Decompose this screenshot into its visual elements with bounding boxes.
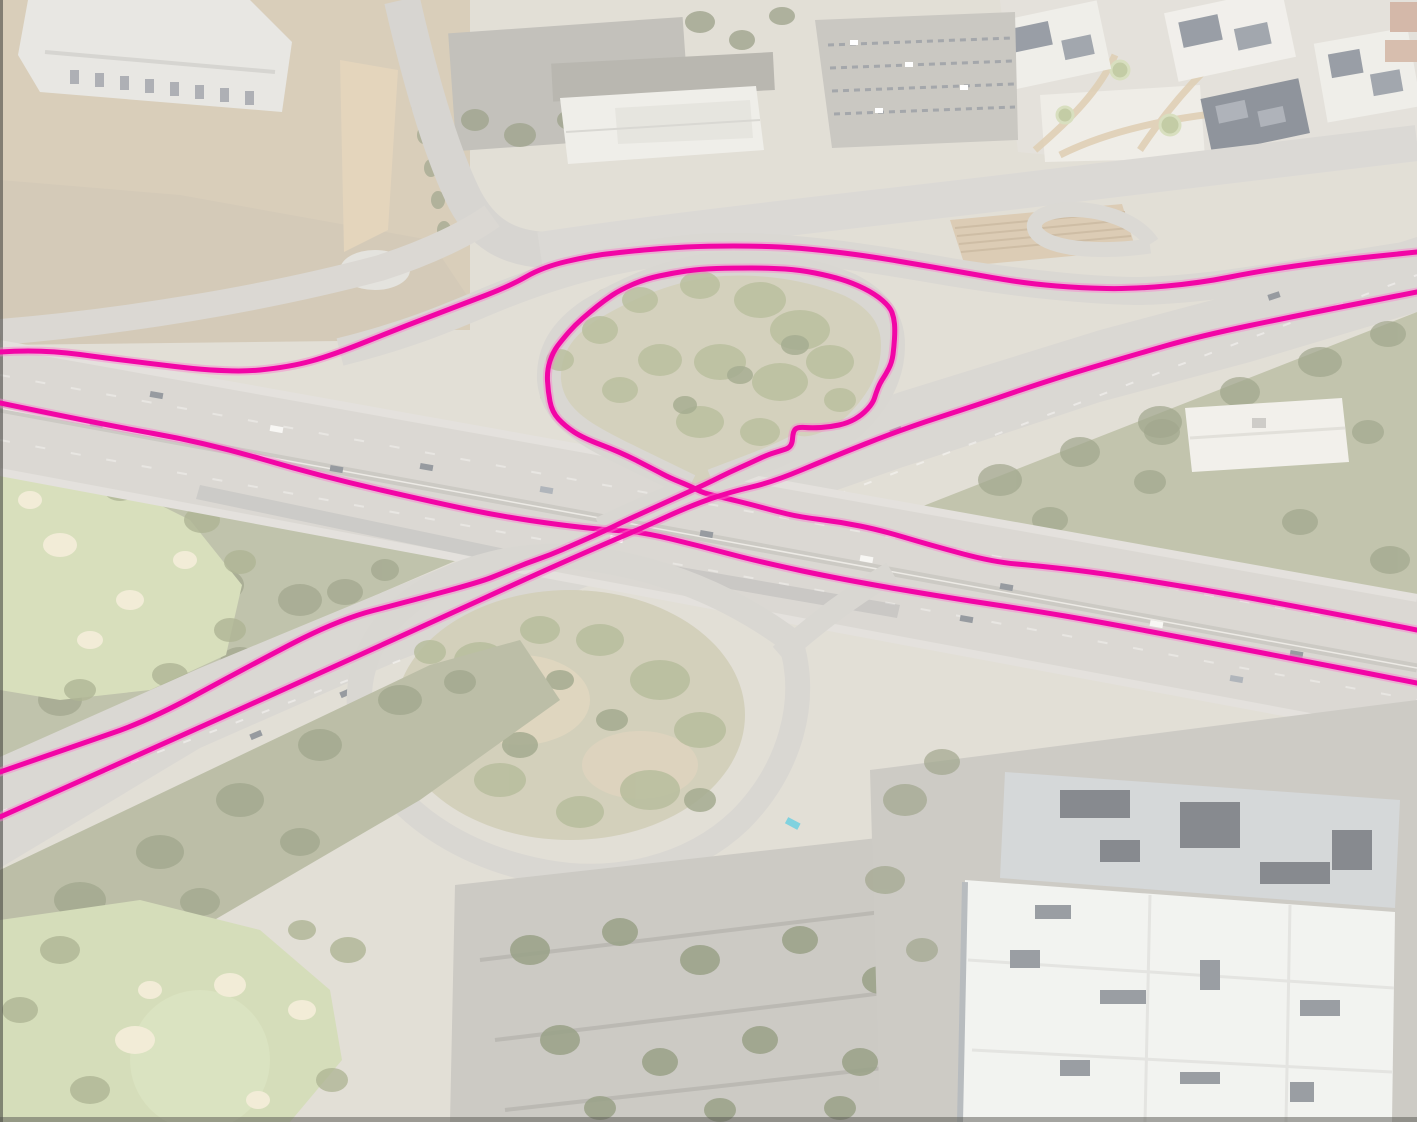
left-frame-edge — [0, 0, 3, 1122]
map-viewport[interactable] — [0, 0, 1417, 1122]
aerial-map-canvas[interactable] — [0, 0, 1417, 1122]
bottom-frame-edge — [0, 1117, 1417, 1122]
satellite-base-layer — [0, 0, 1417, 1122]
imagery-wash — [0, 0, 1417, 1122]
